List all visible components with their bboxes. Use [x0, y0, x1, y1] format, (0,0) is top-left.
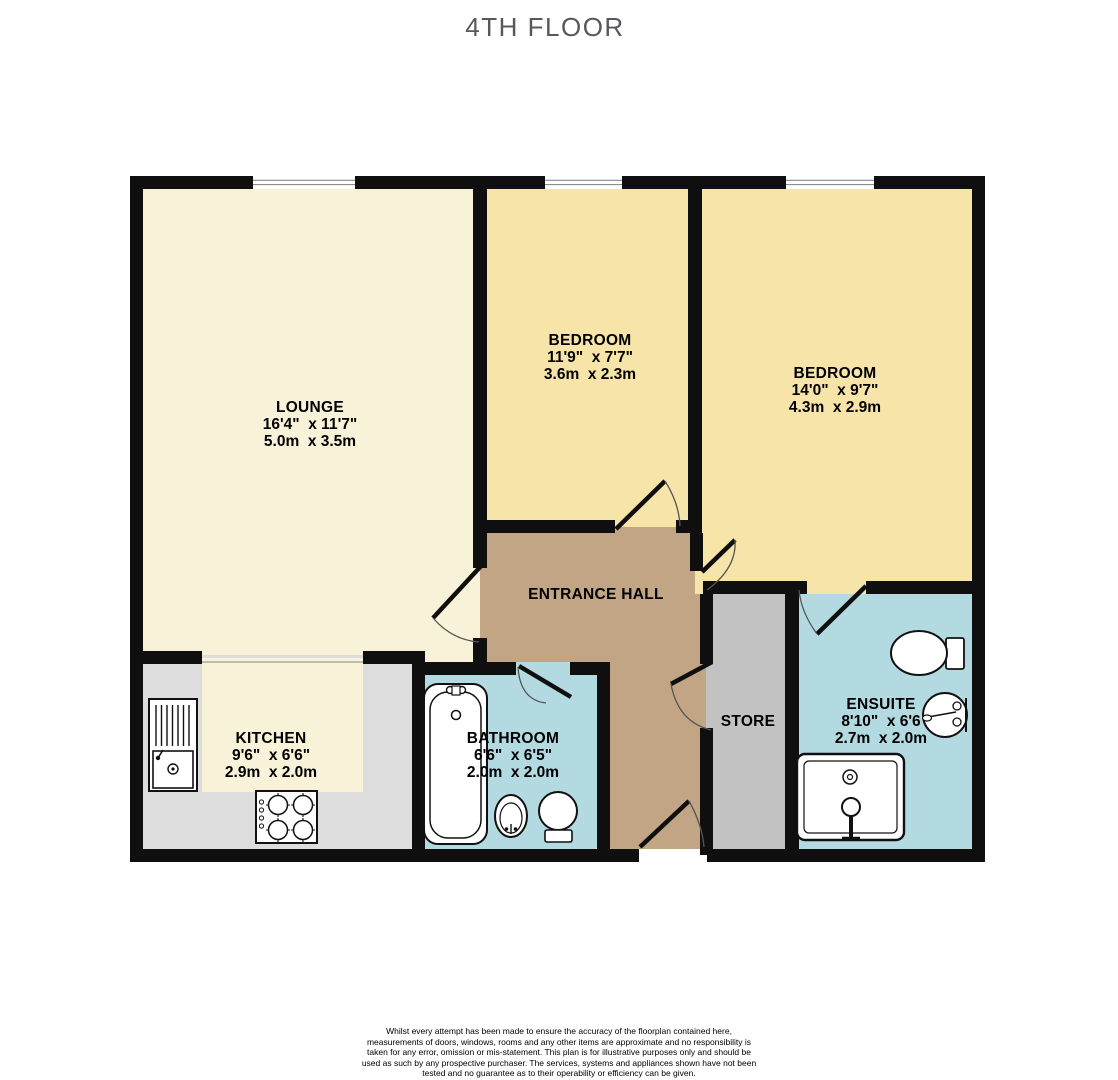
kitchen-label: KITCHEN 9'6" x 6'6" 2.9m x 2.0m: [161, 730, 381, 781]
bedroom1-label: BEDROOM 11'9" x 7'7" 3.6m x 2.3m: [480, 332, 700, 383]
wall-bedroom2-bottom: [703, 581, 807, 594]
entrance-hall-label: ENTRANCE HALL: [486, 586, 706, 603]
bedroom2-label: BEDROOM 14'0" x 9'7" 4.3m x 2.9m: [725, 365, 945, 416]
lounge-label: LOUNGE 16'4" x 11'7" 5.0m x 3.5m: [200, 399, 420, 450]
bathroom-toilet-icon: [539, 792, 577, 842]
wall-kitchen-stub-right: [363, 651, 412, 664]
wall-hall-bedroom2-stub: [690, 533, 703, 571]
wall-ensuite-top: [866, 581, 978, 594]
bedroom1-window: [545, 176, 622, 189]
ensuite-toilet-icon: [891, 631, 964, 675]
floorplan-drawing: [0, 0, 1118, 1080]
disclaimer: Whilst every attempt has been made to en…: [359, 1026, 759, 1080]
wall-outer-bottom-right: [707, 849, 985, 862]
wall-bedroom1-bottom-left: [473, 520, 615, 533]
wall-kitchen-stub-left: [137, 651, 202, 664]
disclaimer-body: Whilst every attempt has been made to en…: [359, 1026, 759, 1079]
wall-store-left-top: [700, 594, 713, 664]
bedroom2-window: [786, 176, 874, 189]
ensuite-label: ENSUITE 8'10" x 6'6 2.7m x 2.0m: [771, 696, 991, 747]
bathroom-basin-icon: [495, 795, 527, 837]
wall-bathroom-top-left: [412, 662, 516, 675]
hob-icon: [256, 791, 317, 843]
floorplan-page: 4TH FLOOR: [0, 0, 1118, 1080]
shower-icon: [797, 754, 904, 840]
wall-outer-bottom-left: [130, 849, 639, 862]
wall-outer-right: [972, 176, 985, 862]
lounge-window: [253, 176, 355, 189]
wall-outer-left: [130, 176, 143, 862]
bathroom-label: BATHROOM 6'6" x 6'5" 2.0m x 2.0m: [403, 730, 623, 781]
